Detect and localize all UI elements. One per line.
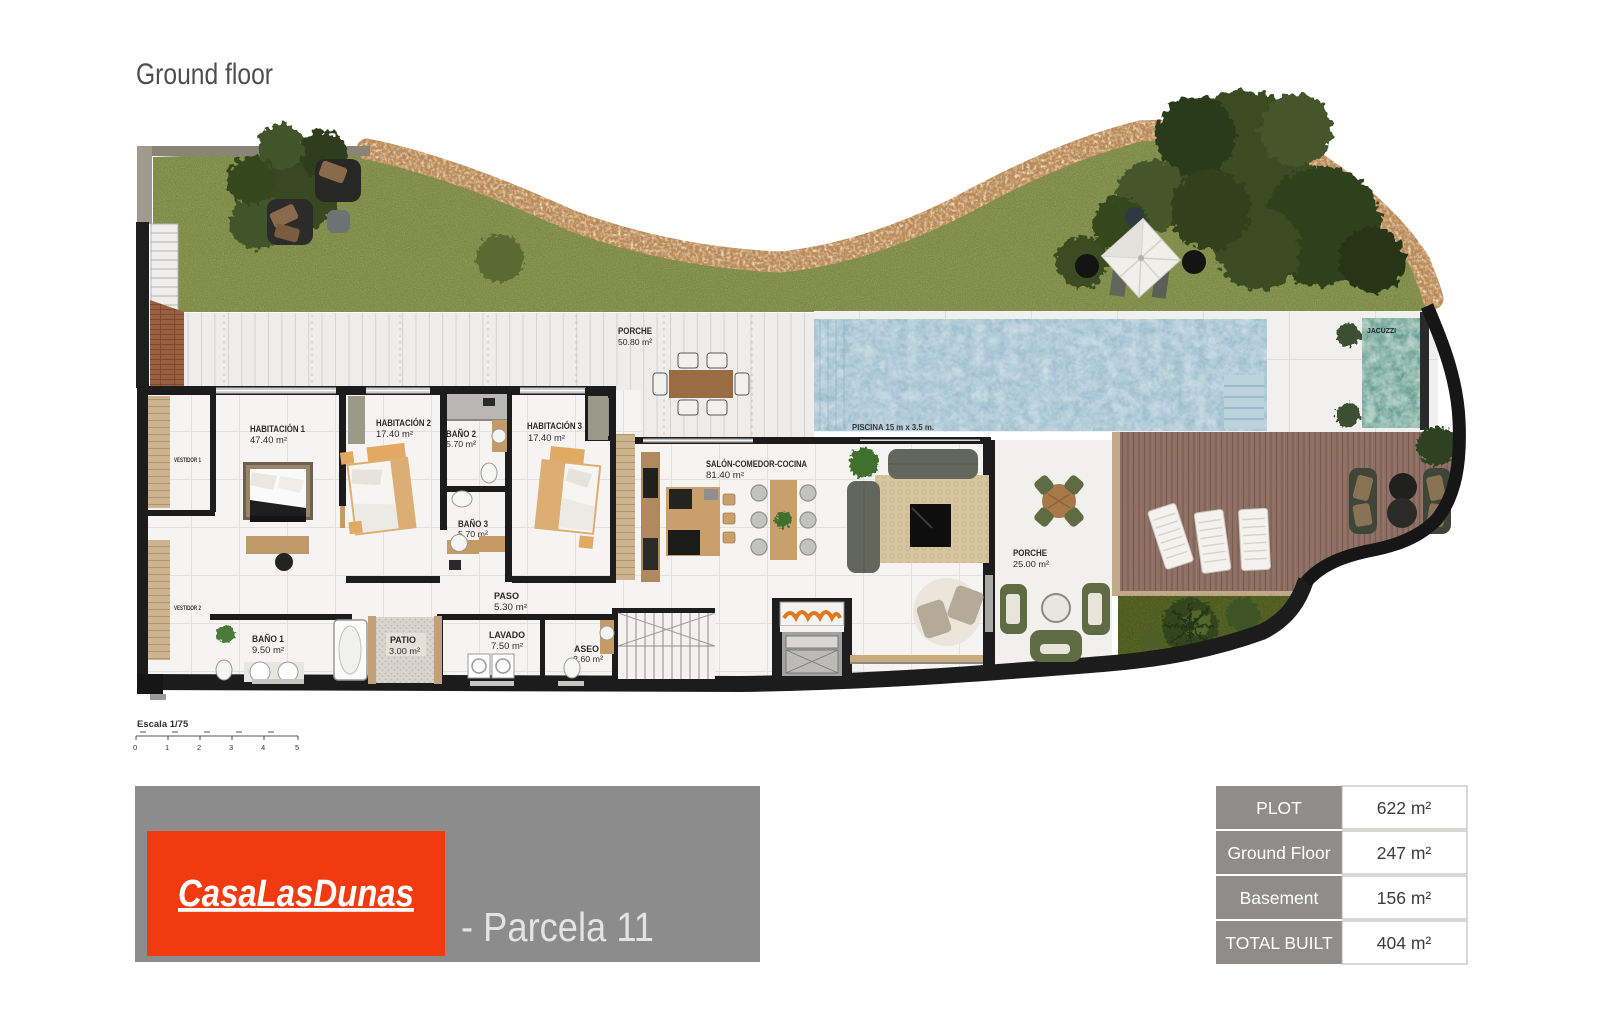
svg-text:Ground Floor: Ground Floor xyxy=(1227,843,1330,863)
svg-text:81.40 m²: 81.40 m² xyxy=(706,470,744,480)
svg-text:4: 4 xyxy=(261,743,265,752)
svg-text:25.00 m²: 25.00 m² xyxy=(1013,559,1049,569)
svg-text:HABITACIÓN 1: HABITACIÓN 1 xyxy=(250,423,306,435)
svg-text:5.30 m²: 5.30 m² xyxy=(494,602,527,612)
svg-text:HABITACIÓN 2: HABITACIÓN 2 xyxy=(376,417,431,429)
svg-text:Escala 1/75: Escala 1/75 xyxy=(137,719,189,730)
svg-text:PATIO: PATIO xyxy=(390,635,416,645)
svg-text:47.40 m²: 47.40 m² xyxy=(250,435,287,445)
svg-text:1: 1 xyxy=(165,743,169,752)
svg-text:PASO: PASO xyxy=(494,591,519,602)
svg-text:5: 5 xyxy=(295,743,299,752)
svg-text:17.40 m²: 17.40 m² xyxy=(376,429,413,439)
svg-text:CasaLasDunas: CasaLasDunas xyxy=(178,873,414,915)
svg-text:247 m²: 247 m² xyxy=(1377,843,1432,863)
svg-text:622 m²: 622 m² xyxy=(1377,798,1432,818)
svg-text:156 m²: 156 m² xyxy=(1377,888,1432,908)
svg-text:BAÑO 1: BAÑO 1 xyxy=(252,634,285,645)
svg-text:SALÓN-COMEDOR-COCINA: SALÓN-COMEDOR-COCINA xyxy=(706,458,807,470)
svg-text:PORCHE: PORCHE xyxy=(1013,548,1047,558)
svg-text:BAÑO 3: BAÑO 3 xyxy=(458,519,488,529)
svg-text:BAÑO 2: BAÑO 2 xyxy=(446,429,476,439)
svg-text:- Parcela 11: - Parcela 11 xyxy=(461,904,654,950)
svg-text:Ground floor: Ground floor xyxy=(136,58,273,91)
svg-text:9.50 m²: 9.50 m² xyxy=(252,645,284,655)
svg-text:PORCHE: PORCHE xyxy=(618,326,652,336)
svg-text:PLOT: PLOT xyxy=(1256,798,1302,818)
svg-text:Basement: Basement xyxy=(1240,888,1319,908)
svg-text:404 m²: 404 m² xyxy=(1377,933,1432,953)
svg-text:JACUZZI: JACUZZI xyxy=(1367,326,1396,335)
svg-text:5.70 m²: 5.70 m² xyxy=(446,439,476,449)
svg-text:ASEO: ASEO xyxy=(574,644,599,654)
svg-text:3: 3 xyxy=(229,743,233,752)
svg-text:7.50 m²: 7.50 m² xyxy=(491,641,523,651)
svg-text:LAVADO: LAVADO xyxy=(489,630,525,641)
svg-text:0: 0 xyxy=(133,743,137,752)
svg-text:TOTAL BUILT: TOTAL BUILT xyxy=(1225,933,1333,953)
svg-text:2: 2 xyxy=(197,743,201,752)
svg-text:HABITACIÓN 3: HABITACIÓN 3 xyxy=(527,420,582,432)
svg-text:3.00 m²: 3.00 m² xyxy=(389,646,420,656)
svg-text:17.40 m²: 17.40 m² xyxy=(528,433,565,443)
svg-text:VESTIDOR 1: VESTIDOR 1 xyxy=(174,458,201,464)
svg-text:PISCINA 15 m x 3.5 m.: PISCINA 15 m x 3.5 m. xyxy=(852,422,934,432)
svg-text:VESTIDOR 2: VESTIDOR 2 xyxy=(174,606,201,612)
svg-text:50.80 m²: 50.80 m² xyxy=(618,337,652,347)
